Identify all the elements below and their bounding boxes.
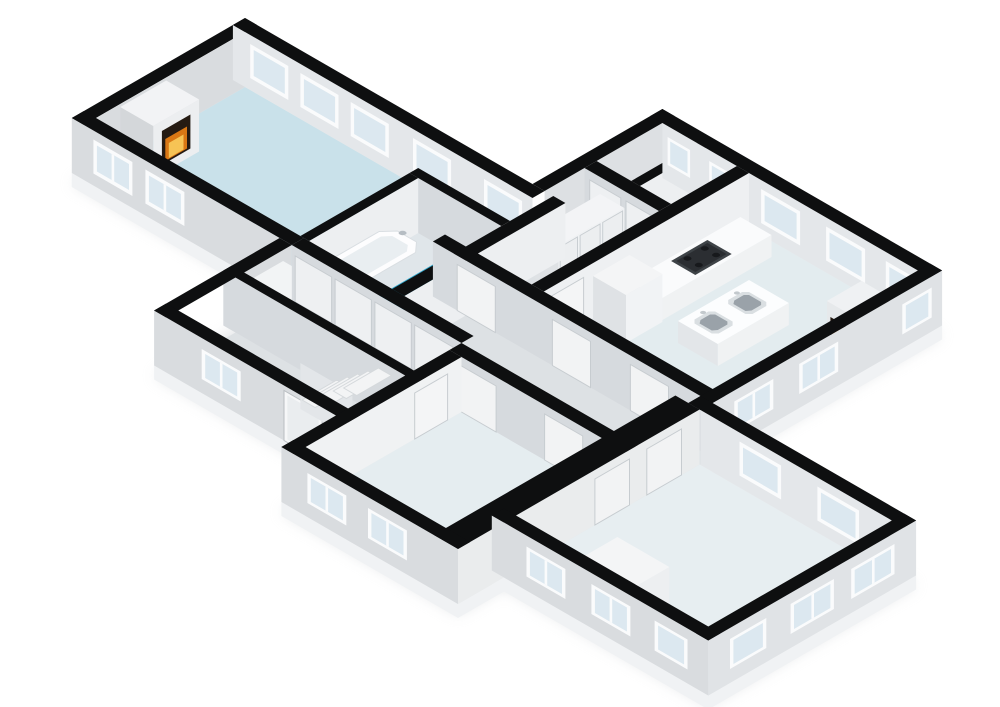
bathtub-faucet <box>399 231 407 235</box>
stove-burner <box>684 256 692 260</box>
sink-faucet <box>700 311 706 314</box>
window-mullion <box>386 522 389 548</box>
stove-burner <box>712 253 720 257</box>
floorplan-svg <box>0 0 1000 707</box>
window-mullion <box>112 154 115 182</box>
window-mullion <box>545 560 548 586</box>
window-mullion <box>164 184 167 212</box>
window-mullion <box>610 598 613 624</box>
sink-faucet <box>734 291 740 294</box>
stove-burner <box>701 246 709 250</box>
window-mullion <box>220 363 223 389</box>
stove-burner <box>695 263 703 267</box>
window-mullion <box>326 487 329 513</box>
window-mullion <box>811 594 814 620</box>
window-mullion <box>872 559 875 585</box>
window-mullion <box>753 393 756 419</box>
floorplan-3d-view <box>0 0 1000 707</box>
window-mullion <box>817 355 820 381</box>
